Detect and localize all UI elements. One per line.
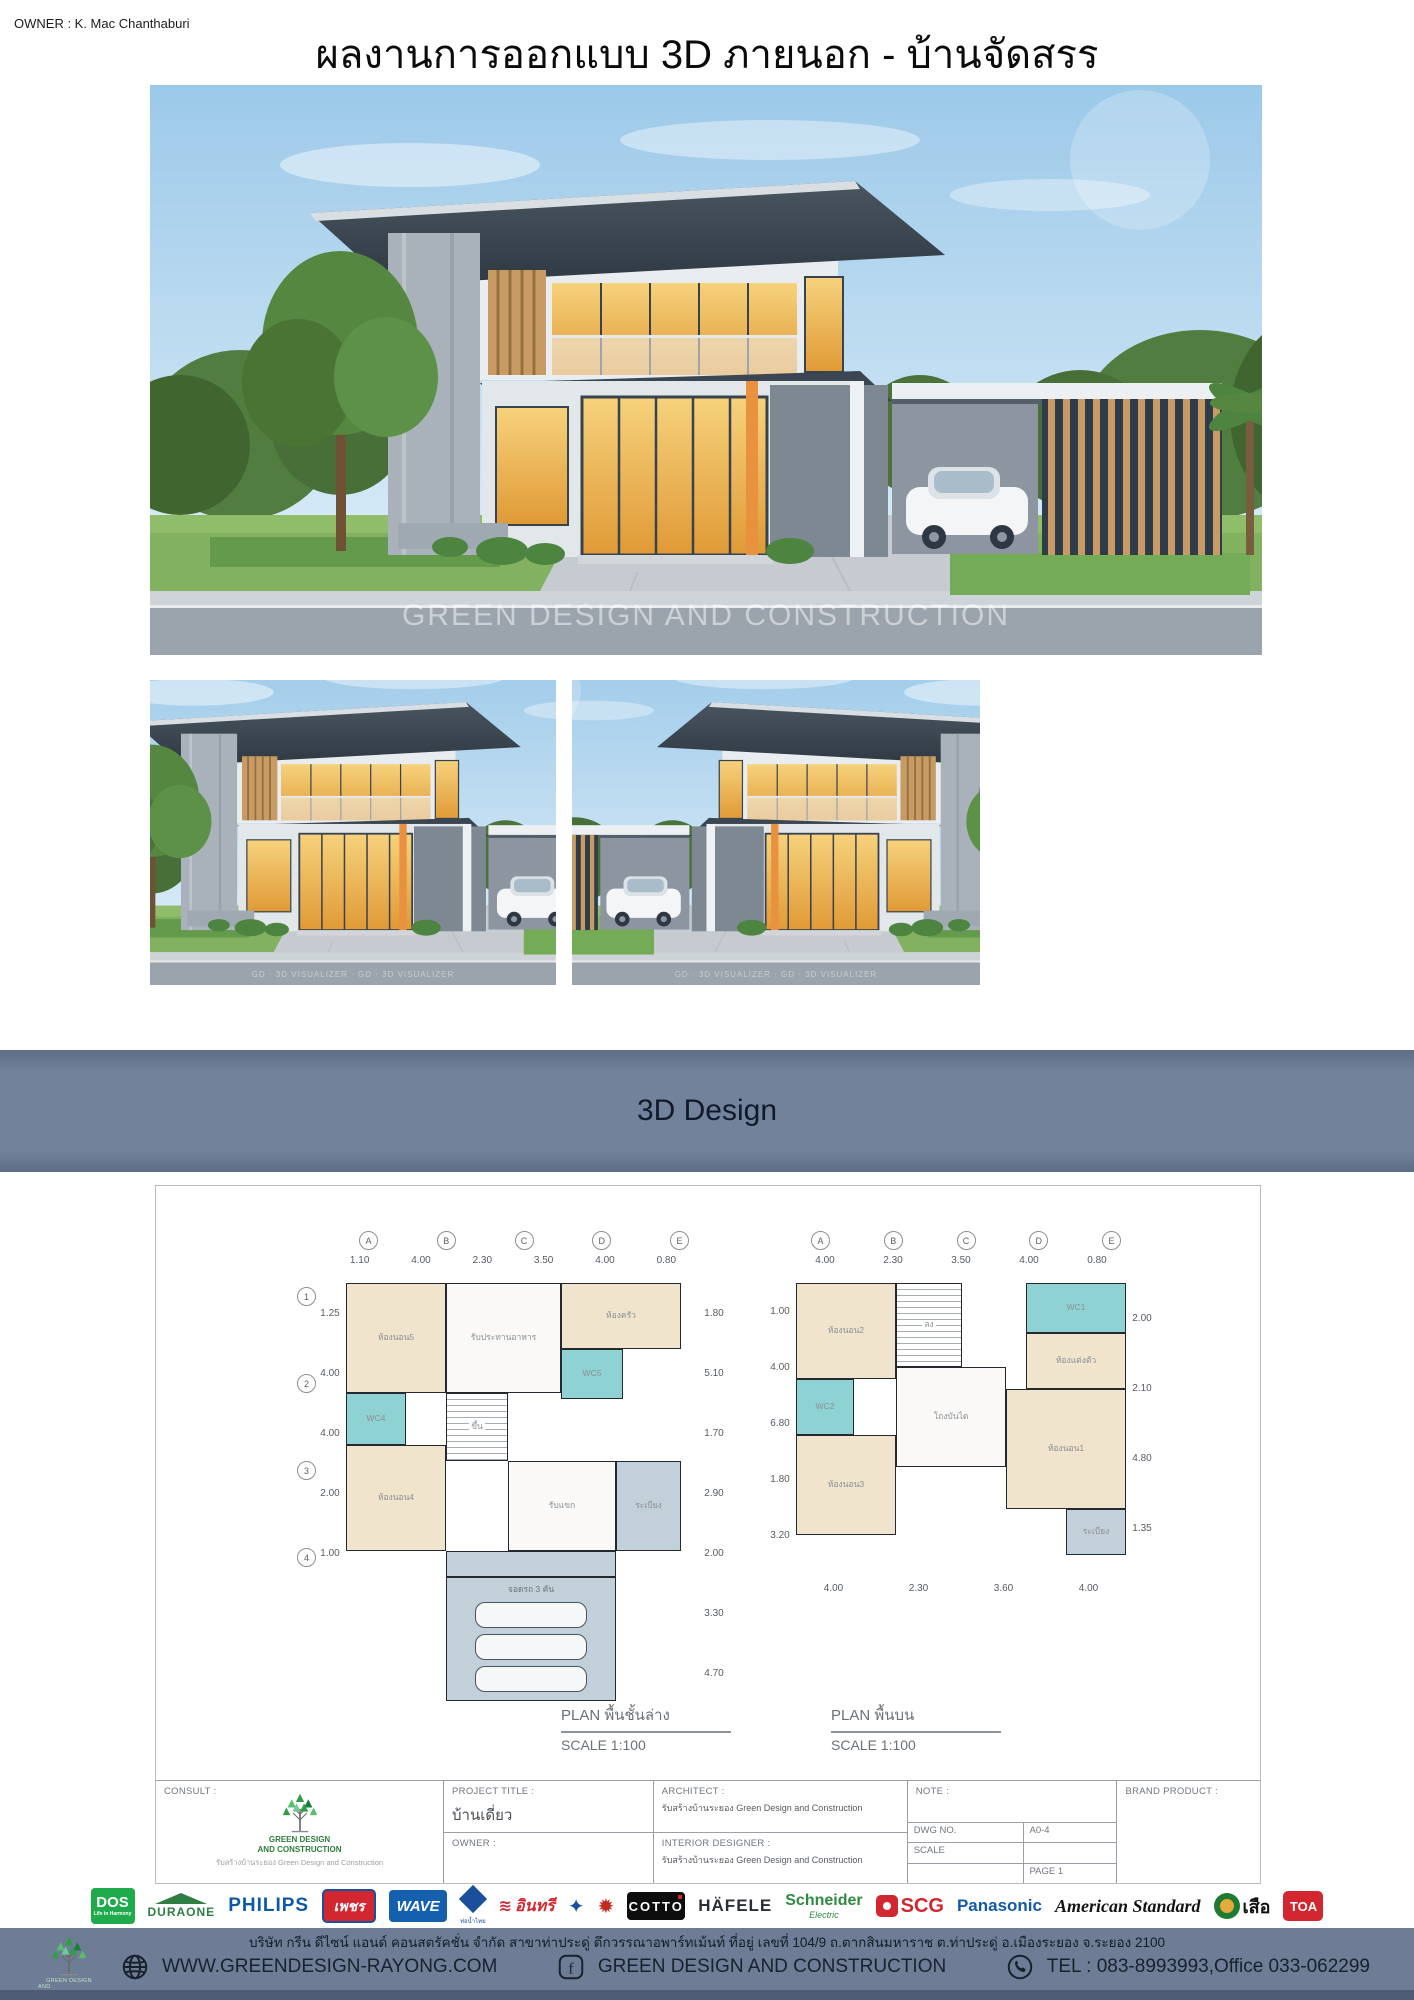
dimension: 1.80 [765, 1474, 795, 1485]
plan-room-balcony: ระเบียง [1066, 1509, 1126, 1555]
brand-toa: TOA [1283, 1891, 1323, 1921]
dwg-no-value: A0-4 [1023, 1823, 1117, 1842]
grid-rows: 1 2 3 4 [297, 1287, 316, 1567]
brand-schneider-electric: SchneiderElectric [785, 1892, 862, 1920]
plan-room-living: รับแขก [508, 1461, 616, 1551]
thai-pipe-diamond-icon [459, 1885, 487, 1913]
dimension: 4.00 [1019, 1255, 1038, 1266]
consult-company-subline: รับสร้างบ้านระยอง Green Design and Const… [216, 1857, 383, 1869]
dimension: 4.70 [699, 1668, 729, 1679]
small-3d-render-left: GD · 3D VISUALIZER · GD · 3D VISUALIZER [150, 680, 556, 985]
consult-label: CONSULT : [164, 1786, 217, 1797]
section-banner-label: 3D Design [637, 1094, 777, 1128]
grid-bubble: C [957, 1231, 976, 1250]
duraone-roof-icon [155, 1893, 207, 1904]
dimension: 0.80 [1087, 1255, 1106, 1266]
dimension: 2.30 [473, 1255, 492, 1266]
section-banner: 3D Design [0, 1050, 1414, 1172]
svg-text:f: f [568, 1959, 574, 1977]
grid-columns: A B C D E [359, 1231, 689, 1250]
brand-american-standard: American Standard [1055, 1896, 1201, 1917]
dimension: 1.00 [765, 1306, 795, 1317]
cotto-red-dot-icon [678, 1895, 682, 1899]
dimension: 2.00 [699, 1548, 729, 1559]
page-value: PAGE 1 [1023, 1864, 1117, 1883]
dimensions-top: 4.00 2.30 3.50 4.00 0.80 [791, 1255, 1131, 1266]
brand-logos-strip: DOSLife in Harmony DURAONE PHILIPS เพชร … [0, 1884, 1414, 1928]
plan-room-wc4: WC4 [346, 1393, 406, 1445]
plan-room-dressing: ห้องแต่งตัว [1026, 1333, 1126, 1389]
architect-label: ARCHITECT : [662, 1786, 725, 1797]
plan-room-balcony: ระเบียง [616, 1461, 681, 1551]
plan-room-kitchen: ห้องครัว [561, 1283, 681, 1349]
dimension: 3.30 [699, 1608, 729, 1619]
titleblock-project-cell: PROJECT TITLE : บ้านเดี่ยว OWNER : [443, 1781, 653, 1883]
ground-floor-plan: A B C D E 1.10 4.00 2.30 3.50 4.00 0.80 … [301, 1231, 711, 1721]
render-watermark-small: GD · 3D VISUALIZER · GD · 3D VISUALIZER [572, 970, 980, 979]
scale-label: SCALE [908, 1843, 1023, 1862]
plan-room-bedroom1: ห้องนอน1 [1006, 1389, 1126, 1509]
ground-plan-caption: PLAN พื้นชั้นล่าง SCALE 1:100 [561, 1703, 731, 1753]
render-watermark-small: GD · 3D VISUALIZER · GD · 3D VISUALIZER [150, 970, 556, 979]
dimension: 6.80 [765, 1418, 795, 1429]
dimension: 5.10 [699, 1368, 729, 1379]
plan-room-stair: ลง [896, 1283, 962, 1367]
dimension: 2.00 [1127, 1313, 1157, 1324]
website-link[interactable]: WWW.GREENDESIGN-RAYONG.COM [120, 1952, 497, 1982]
dimension: 0.80 [657, 1255, 676, 1266]
render-watermark: GREEN DESIGN AND CONSTRUCTION [150, 599, 1262, 633]
dimension: 3.20 [765, 1530, 795, 1541]
plan-room-wc2: WC2 [796, 1379, 854, 1435]
page-label [908, 1864, 1023, 1883]
plan-terrace [446, 1551, 616, 1577]
dimension: 4.00 [765, 1362, 795, 1373]
drawing-sheet: A B C D E 1.10 4.00 2.30 3.50 4.00 0.80 … [155, 1185, 1261, 1884]
plan-room-hall: โถงบันได [896, 1367, 1006, 1467]
grid-bubble: E [1102, 1231, 1121, 1250]
car-outline [475, 1602, 587, 1628]
dimension: 2.90 [699, 1488, 729, 1499]
dimension: 4.80 [1127, 1453, 1157, 1464]
dimension: 1.00 [315, 1548, 345, 1559]
brand-hafele: HÄFELE [698, 1896, 772, 1916]
titleblock-note-cell: NOTE : DWG NO. A0-4 SCALE PAGE 1 [907, 1781, 1117, 1883]
project-title-label: PROJECT TITLE : [452, 1786, 534, 1797]
dimension: 4.00 [315, 1428, 345, 1439]
dimension: 1.35 [1127, 1523, 1157, 1534]
upper-floor-plan: A B C D E 4.00 2.30 3.50 4.00 0.80 1.00 … [771, 1231, 1151, 1671]
grid-bubble: B [884, 1231, 903, 1250]
dimension: 4.00 [824, 1583, 843, 1594]
dimension: 1.25 [315, 1308, 345, 1319]
interior-designer-value: รับสร้างบ้านระยอง Green Design and Const… [662, 1853, 863, 1867]
plan-caption-title: PLAN พื้นชั้นล่าง [561, 1703, 731, 1733]
house-render-illustration [150, 85, 1262, 655]
dimension: 3.60 [994, 1583, 1013, 1594]
plan-room-bedroom3: ห้องนอน3 [796, 1435, 896, 1535]
grid-bubble: 1 [297, 1287, 316, 1306]
dimension: 1.80 [699, 1308, 729, 1319]
grid-bubble: D [592, 1231, 611, 1250]
dimension: 4.00 [1079, 1583, 1098, 1594]
titleblock-brand-cell: BRAND PRODUCT : [1116, 1781, 1260, 1883]
dimension: 3.50 [951, 1255, 970, 1266]
footer-bottom-strip [0, 1990, 1414, 2000]
owner-field-label: OWNER : [452, 1838, 496, 1849]
grid-bubble: B [437, 1231, 456, 1250]
brand-duraone: DURAONE [148, 1893, 216, 1919]
dwg-no-label: DWG NO. [908, 1823, 1023, 1842]
dimension: 4.00 [315, 1368, 345, 1379]
dimensions-right: 2.00 2.10 4.80 1.35 [1127, 1283, 1157, 1563]
main-3d-render: GREEN DESIGN AND CONSTRUCTION [150, 85, 1262, 655]
portfolio-page: OWNER : K. Mac Chanthaburi ผลงานการออกแบ… [0, 0, 1414, 2000]
small-3d-render-right: GD · 3D VISUALIZER · GD · 3D VISUALIZER [572, 680, 980, 985]
scg-elephant-icon [876, 1895, 898, 1917]
dimension: 4.00 [595, 1255, 614, 1266]
titleblock-consult-cell: CONSULT : GREEN DESIGNAND CONSTRUCTION ร… [156, 1781, 443, 1883]
brand-thai-pipe: ท่อน้ำไทย [460, 1886, 486, 1926]
brand-dos: DOSLife in Harmony [91, 1888, 135, 1924]
facebook-page-name: GREEN DESIGN AND CONSTRUCTION [598, 1956, 946, 1978]
website-url: WWW.GREENDESIGN-RAYONG.COM [162, 1956, 497, 1978]
interior-designer-label: INTERIOR DESIGNER : [662, 1838, 771, 1849]
blue-emblem-logo: ✦ [568, 1894, 585, 1919]
plan-caption-scale: SCALE 1:100 [831, 1733, 1001, 1753]
title-block: CONSULT : GREEN DESIGNAND CONSTRUCTION ร… [156, 1780, 1260, 1883]
titleblock-architect-cell: ARCHITECT : รับสร้างบ้านระยอง Green Desi… [653, 1781, 907, 1883]
car-outline [475, 1634, 587, 1660]
grid-bubble: A [359, 1231, 378, 1250]
car-outline [475, 1666, 587, 1692]
dimension: 1.70 [699, 1428, 729, 1439]
green-design-tree-logo-icon [278, 1791, 322, 1835]
dimension: 2.30 [883, 1255, 902, 1266]
tiger-circle-icon [1214, 1893, 1240, 1919]
dimension: 2.30 [909, 1583, 928, 1594]
grid-bubble: D [1029, 1231, 1048, 1250]
dimension: 2.10 [1127, 1383, 1157, 1394]
plan-caption-scale: SCALE 1:100 [561, 1733, 731, 1753]
plan-room-bedroom5: ห้องนอน5 [346, 1283, 446, 1393]
plan-room-bedroom2: ห้องนอน2 [796, 1283, 896, 1379]
carport-label: จอดรถ 3 คัน [508, 1582, 554, 1596]
brand-product-label: BRAND PRODUCT : [1125, 1786, 1217, 1797]
facebook-icon: f [556, 1952, 586, 1982]
facebook-link[interactable]: f GREEN DESIGN AND CONSTRUCTION [556, 1952, 946, 1982]
consult-company-name: GREEN DESIGNAND CONSTRUCTION [258, 1835, 342, 1855]
brand-insee: ≋ อินทรี [499, 1894, 555, 1919]
globe-icon [120, 1952, 150, 1982]
plan-room-wc5: WC5 [561, 1349, 623, 1399]
scale-value [1023, 1843, 1117, 1862]
brand-tiger-cement: เสือ [1214, 1892, 1271, 1921]
project-title-value: บ้านเดี่ยว [452, 1803, 512, 1827]
plan-room-wc1: WC1 [1026, 1283, 1126, 1333]
house-render-illustration [150, 680, 556, 985]
house-render-illustration [572, 680, 980, 985]
plan-room-stair: ขึ้น [446, 1393, 508, 1461]
grid-bubble: 4 [297, 1548, 316, 1567]
footer-contact-row: WWW.GREENDESIGN-RAYONG.COM f GREEN DESIG… [120, 1952, 1390, 1982]
grid-bubble: 2 [297, 1374, 316, 1393]
grid-bubble: E [670, 1231, 689, 1250]
plan-room-bedroom4: ห้องนอน4 [346, 1445, 446, 1551]
page-title: ผลงานการออกแบบ 3D ภายนอก - บ้านจัดสรร [0, 22, 1414, 86]
company-address-line: บริษัท กรีน ดีไซน์ แอนด์ คอนสตรัคชั่น จำ… [0, 1931, 1414, 1953]
grid-bubble: 3 [297, 1461, 316, 1480]
dimensions-bottom: 4.00 2.30 3.60 4.00 [791, 1583, 1131, 1594]
phone-contact[interactable]: TEL : 083-8993993,Office 033-062299 [1005, 1952, 1370, 1982]
brand-panasonic: Panasonic [957, 1896, 1042, 1916]
brand-wave: WAVE [389, 1890, 447, 1922]
brand-cotto: COTTO [627, 1892, 685, 1920]
dimension: 3.50 [534, 1255, 553, 1266]
phone-numbers: TEL : 083-8993993,Office 033-062299 [1047, 1956, 1370, 1978]
insee-eagle-icon: ≋ [499, 1896, 512, 1916]
red-emblem-logo: ✹ [597, 1894, 614, 1919]
phone-icon [1005, 1952, 1035, 1982]
plan-caption-title: PLAN พื้นบน [831, 1703, 1001, 1733]
dimensions-top: 1.10 4.00 2.30 3.50 4.00 0.80 [329, 1255, 697, 1266]
brand-phet: เพชร [322, 1889, 376, 1923]
grid-bubble: C [515, 1231, 534, 1250]
brand-philips: PHILIPS [228, 1895, 309, 1917]
dimension: 2.00 [315, 1488, 345, 1499]
plan-room-dining: รับประทานอาหาร [446, 1283, 561, 1393]
architect-value: รับสร้างบ้านระยอง Green Design and Const… [662, 1801, 863, 1815]
dimensions-right: 1.80 5.10 1.70 2.90 2.00 3.30 4.70 [699, 1283, 729, 1703]
note-label: NOTE : [916, 1786, 949, 1797]
plan-carport: จอดรถ 3 คัน [446, 1577, 616, 1701]
dimension: 1.10 [350, 1255, 369, 1266]
dimensions-left: 1.25 4.00 4.00 2.00 1.00 [315, 1283, 345, 1583]
dimension: 4.00 [411, 1255, 430, 1266]
upper-plan-caption: PLAN พื้นบน SCALE 1:100 [831, 1703, 1001, 1753]
dimension: 4.00 [815, 1255, 834, 1266]
brand-scg: SCG [876, 1895, 944, 1918]
grid-columns: A B C D E [811, 1231, 1121, 1250]
grid-bubble: A [811, 1231, 830, 1250]
dimensions-left: 1.00 4.00 6.80 1.80 3.20 [765, 1283, 795, 1563]
